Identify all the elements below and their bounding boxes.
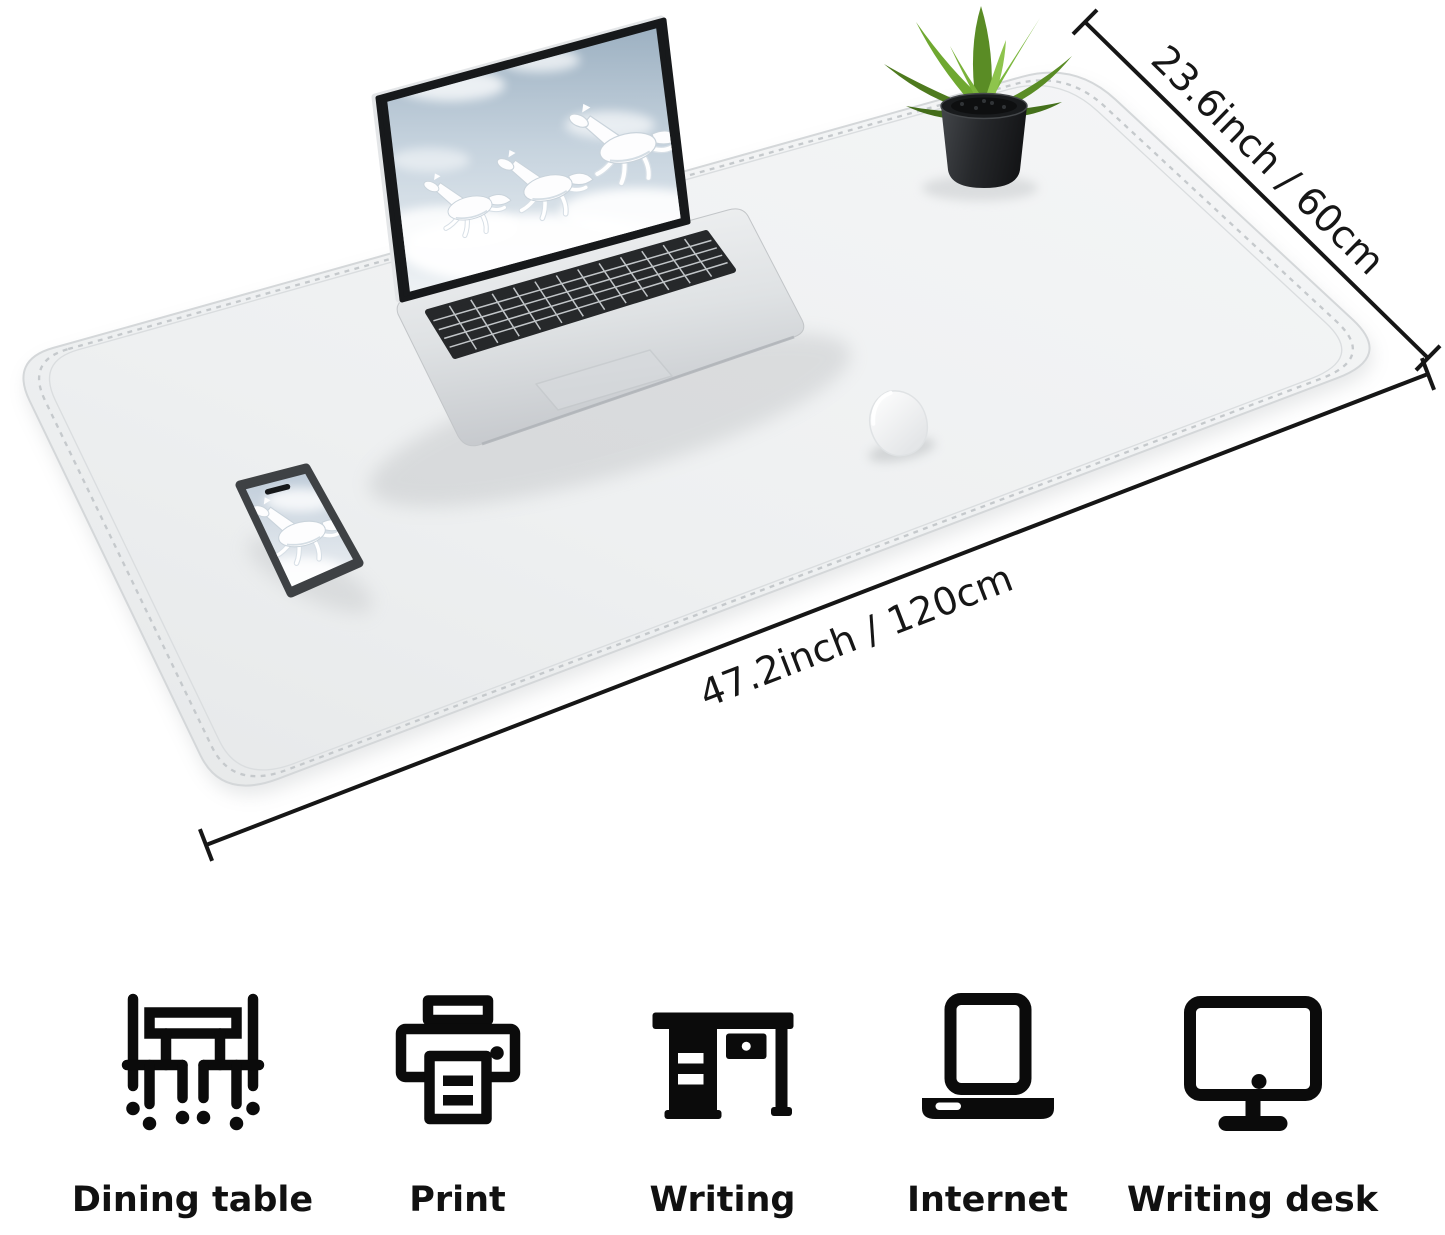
features-row: Dining table Print	[0, 960, 1445, 1235]
desk-scene: 23.6inch / 60cm 47.2inch / 120cm	[0, 0, 1445, 960]
feature-label: Internet	[907, 1180, 1068, 1220]
feature-print: Print	[325, 960, 590, 1235]
monitor-icon	[1173, 990, 1333, 1140]
feature-writing: Writing	[590, 960, 855, 1235]
feature-dining-table: Dining table	[60, 960, 325, 1235]
dining-table-icon	[113, 990, 273, 1140]
feature-label: Writing	[650, 1180, 796, 1220]
desk-icon	[643, 990, 803, 1140]
printer-icon	[378, 990, 538, 1140]
feature-label: Print	[409, 1180, 506, 1220]
product-image: 23.6inch / 60cm 47.2inch / 120cm Di	[0, 0, 1445, 1235]
feature-writing-desk: Writing desk	[1120, 960, 1385, 1235]
feature-internet: Internet	[855, 960, 1120, 1235]
laptop-icon	[908, 990, 1068, 1140]
feature-label: Dining table	[72, 1180, 313, 1220]
feature-label: Writing desk	[1127, 1180, 1378, 1220]
